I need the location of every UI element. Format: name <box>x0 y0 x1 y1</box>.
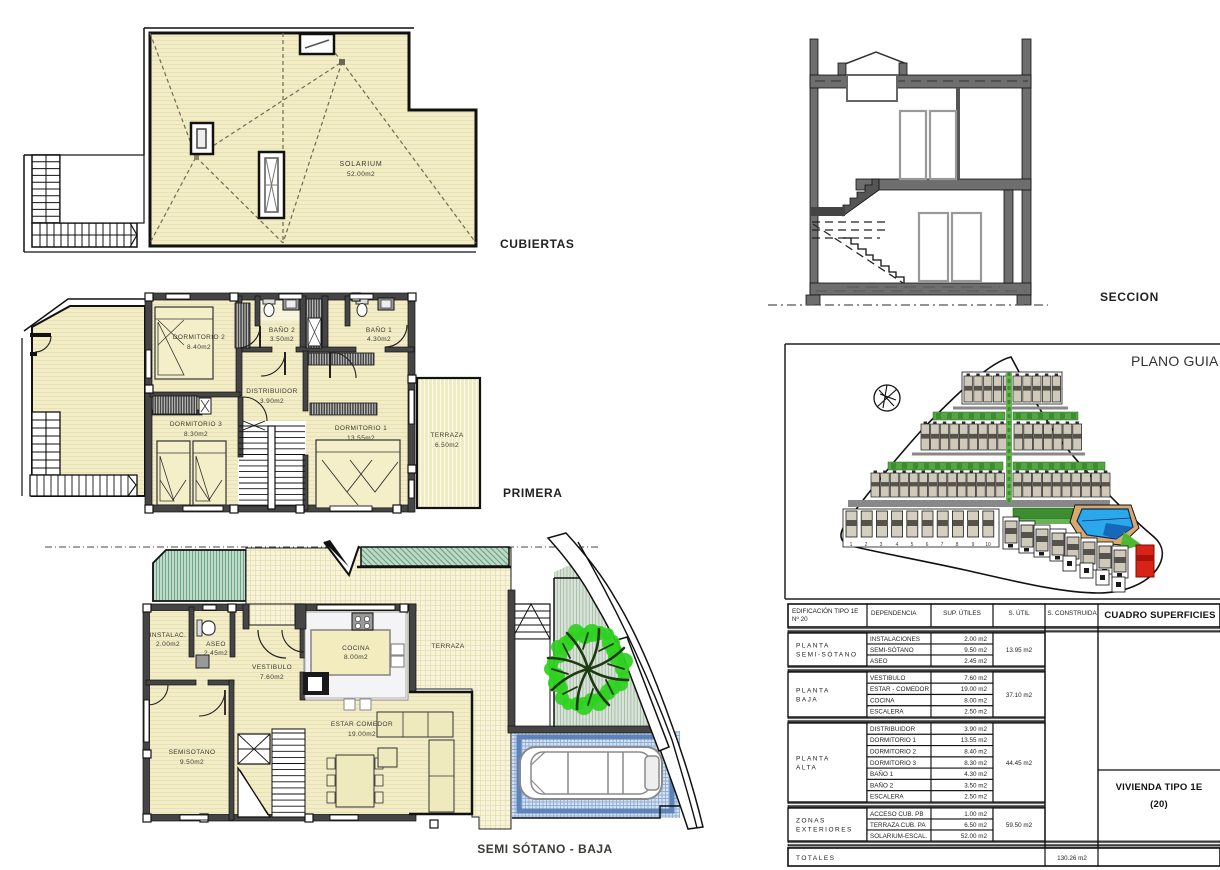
svg-text:59.50 m2: 59.50 m2 <box>1006 822 1033 829</box>
svg-text:ACCESO CUB. PB: ACCESO CUB. PB <box>870 811 924 818</box>
svg-text:ESTAR - COMEDOR: ESTAR - COMEDOR <box>870 686 929 693</box>
svg-text:19.00 m2: 19.00 m2 <box>961 686 988 693</box>
svg-text:VESTIBULO: VESTIBULO <box>870 675 905 682</box>
svg-text:5: 5 <box>911 542 914 548</box>
svg-text:S. ÚTIL: S. ÚTIL <box>1008 608 1030 617</box>
svg-text:ALTA: ALTA <box>796 765 817 772</box>
svg-text:4: 4 <box>896 542 899 548</box>
svg-text:9.50m2: 9.50m2 <box>180 759 204 766</box>
svg-text:PLANTA: PLANTA <box>796 688 830 695</box>
svg-text:2: 2 <box>865 542 868 548</box>
svg-text:VIVIENDA TIPO 1E: VIVIENDA TIPO 1E <box>1116 782 1203 793</box>
svg-text:19.00m2: 19.00m2 <box>348 731 376 738</box>
svg-text:1: 1 <box>850 542 853 548</box>
svg-text:BAÑO 2: BAÑO 2 <box>870 780 894 789</box>
svg-text:SECCION: SECCION <box>1100 290 1159 304</box>
svg-text:TERRAZA CUB. PA: TERRAZA CUB. PA <box>870 822 926 829</box>
svg-text:DORMITORIO 1: DORMITORIO 1 <box>870 737 917 744</box>
svg-text:INSTALAC.: INSTALAC. <box>150 632 187 639</box>
svg-text:3.90m2: 3.90m2 <box>260 398 284 405</box>
svg-text:DORMITORIO 2: DORMITORIO 2 <box>870 749 917 756</box>
svg-text:DISTRIBUIDOR: DISTRIBUIDOR <box>246 388 297 395</box>
svg-text:DORMITORIO 2: DORMITORIO 2 <box>173 334 225 341</box>
svg-text:ZONAS: ZONAS <box>796 818 826 825</box>
svg-text:52.00 m2: 52.00 m2 <box>961 833 988 840</box>
svg-text:8.30 m2: 8.30 m2 <box>964 760 987 767</box>
svg-text:BAJA: BAJA <box>796 697 818 704</box>
svg-text:3: 3 <box>880 542 883 548</box>
svg-text:44.45 m2: 44.45 m2 <box>1006 760 1033 767</box>
svg-text:TERRAZA: TERRAZA <box>430 432 463 439</box>
svg-text:COCINA: COCINA <box>342 645 370 652</box>
svg-text:7.60 m2: 7.60 m2 <box>964 675 987 682</box>
svg-text:1.00 m2: 1.00 m2 <box>964 811 987 818</box>
svg-text:BAÑO 1: BAÑO 1 <box>870 769 894 778</box>
svg-text:6: 6 <box>926 542 929 548</box>
svg-text:SEMISOTANO: SEMISOTANO <box>169 749 216 756</box>
svg-text:DEPENDENCIA: DEPENDENCIA <box>871 610 917 617</box>
svg-text:CUBIERTAS: CUBIERTAS <box>500 237 575 251</box>
svg-text:SUP. ÚTILES: SUP. ÚTILES <box>943 608 981 617</box>
svg-text:2.00 m2: 2.00 m2 <box>964 636 987 643</box>
svg-text:2.45 m2: 2.45 m2 <box>964 658 987 665</box>
svg-text:2.00m2: 2.00m2 <box>156 641 180 648</box>
svg-text:VESTIBULO: VESTIBULO <box>252 664 292 671</box>
svg-text:DORMITORIO 3: DORMITORIO 3 <box>870 760 917 767</box>
svg-text:9.50 m2: 9.50 m2 <box>964 647 987 654</box>
svg-text:2.45m2: 2.45m2 <box>204 650 228 657</box>
svg-text:8.00m2: 8.00m2 <box>344 654 368 661</box>
svg-text:PLANTA: PLANTA <box>796 643 830 650</box>
svg-text:7.60m2: 7.60m2 <box>260 674 284 681</box>
svg-text:SOLARIUM-ESCAL.: SOLARIUM-ESCAL. <box>870 833 928 840</box>
svg-text:ASEO: ASEO <box>870 658 888 665</box>
svg-text:8.40m2: 8.40m2 <box>187 344 211 351</box>
svg-text:3.50 m2: 3.50 m2 <box>964 782 987 789</box>
svg-text:6.50m2: 6.50m2 <box>435 442 459 449</box>
svg-text:2.50 m2: 2.50 m2 <box>964 709 987 716</box>
svg-text:SEMI SÓTANO - BAJA: SEMI SÓTANO - BAJA <box>477 841 612 856</box>
svg-text:SEMI-SÓTANO: SEMI-SÓTANO <box>870 645 914 654</box>
svg-text:ESCALERA: ESCALERA <box>870 709 904 716</box>
svg-text:13.55m2: 13.55m2 <box>347 435 375 442</box>
svg-text:13.95 m2: 13.95 m2 <box>1006 647 1033 654</box>
svg-text:52.00m2: 52.00m2 <box>347 171 375 178</box>
svg-text:BAÑO 1: BAÑO 1 <box>366 325 392 334</box>
svg-text:COCINA: COCINA <box>870 697 895 704</box>
svg-text:8.30m2: 8.30m2 <box>184 431 208 438</box>
svg-text:13.55 m2: 13.55 m2 <box>961 737 988 744</box>
svg-text:DORMITORIO 3: DORMITORIO 3 <box>170 421 222 428</box>
svg-text:S. CONSTRUIDA: S. CONSTRUIDA <box>1047 610 1097 617</box>
svg-text:TOTALES: TOTALES <box>796 855 836 862</box>
svg-text:8.40 m2: 8.40 m2 <box>964 749 987 756</box>
svg-text:EDIFICACIÓN TIPO 1E: EDIFICACIÓN TIPO 1E <box>792 606 858 615</box>
svg-text:CUADRO SUPERFICIES: CUADRO SUPERFICIES <box>1104 610 1215 621</box>
svg-text:BAÑO 2: BAÑO 2 <box>269 325 295 334</box>
svg-text:SEMI-SÓTANO: SEMI-SÓTANO <box>796 650 858 659</box>
svg-text:8: 8 <box>956 542 959 548</box>
svg-text:4.30m2: 4.30m2 <box>367 336 391 343</box>
svg-text:ESTAR COMEDOR: ESTAR COMEDOR <box>331 721 393 728</box>
svg-text:SOLARIUM: SOLARIUM <box>340 161 383 168</box>
svg-text:EXTERIORES: EXTERIORES <box>796 827 853 834</box>
svg-text:4.30 m2: 4.30 m2 <box>964 771 987 778</box>
svg-text:INSTALACIONES: INSTALACIONES <box>870 636 920 643</box>
svg-text:DISTRIBUIDOR: DISTRIBUIDOR <box>870 726 916 733</box>
svg-text:130.26 m2: 130.26 m2 <box>1057 855 1087 862</box>
svg-text:10: 10 <box>985 542 991 548</box>
svg-text:Nº 20: Nº 20 <box>792 616 808 623</box>
svg-text:DORMITORIO 1: DORMITORIO 1 <box>335 425 387 432</box>
svg-text:37.10 m2: 37.10 m2 <box>1006 692 1033 699</box>
svg-text:PLANO GUIA: PLANO GUIA <box>1131 353 1219 369</box>
svg-text:TERRAZA: TERRAZA <box>431 643 464 650</box>
svg-text:7: 7 <box>941 542 944 548</box>
svg-text:ESCALERA: ESCALERA <box>870 794 904 801</box>
svg-text:3.90 m2: 3.90 m2 <box>964 726 987 733</box>
svg-text:3.50m2: 3.50m2 <box>270 336 294 343</box>
svg-text:6.50 m2: 6.50 m2 <box>964 822 987 829</box>
svg-text:ASEO: ASEO <box>206 641 226 648</box>
svg-text:9: 9 <box>972 542 975 548</box>
svg-text:PRIMERA: PRIMERA <box>503 486 563 500</box>
svg-text:8.00 m2: 8.00 m2 <box>964 697 987 704</box>
svg-text:(20): (20) <box>1150 799 1168 810</box>
svg-text:PLANTA: PLANTA <box>796 756 830 763</box>
svg-text:2.50 m2: 2.50 m2 <box>964 794 987 801</box>
